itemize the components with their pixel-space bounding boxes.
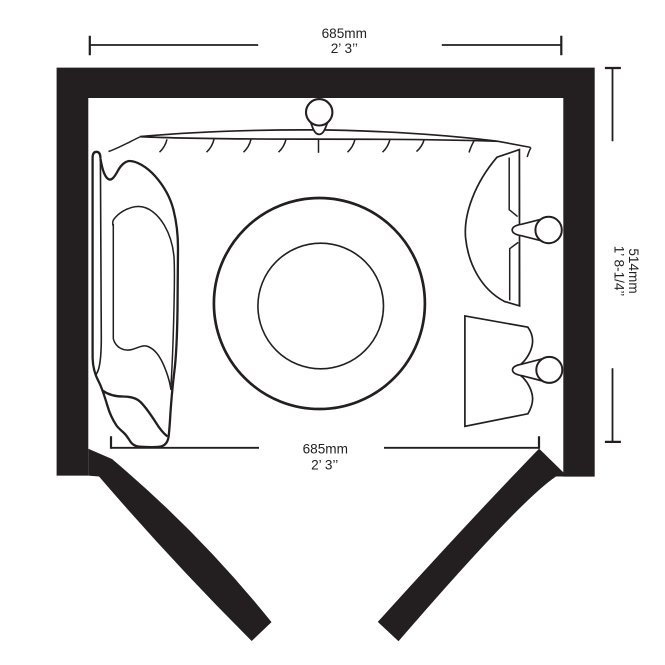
svg-text:2’ 3’’: 2’ 3’’ [331, 41, 358, 56]
svg-text:514mm: 514mm [626, 248, 641, 293]
svg-text:2’ 3’’: 2’ 3’’ [311, 457, 338, 472]
svg-text:685mm: 685mm [322, 26, 367, 41]
svg-text:685mm: 685mm [303, 441, 348, 456]
svg-text:1’ 8-1/4’’: 1’ 8-1/4’’ [611, 246, 626, 297]
